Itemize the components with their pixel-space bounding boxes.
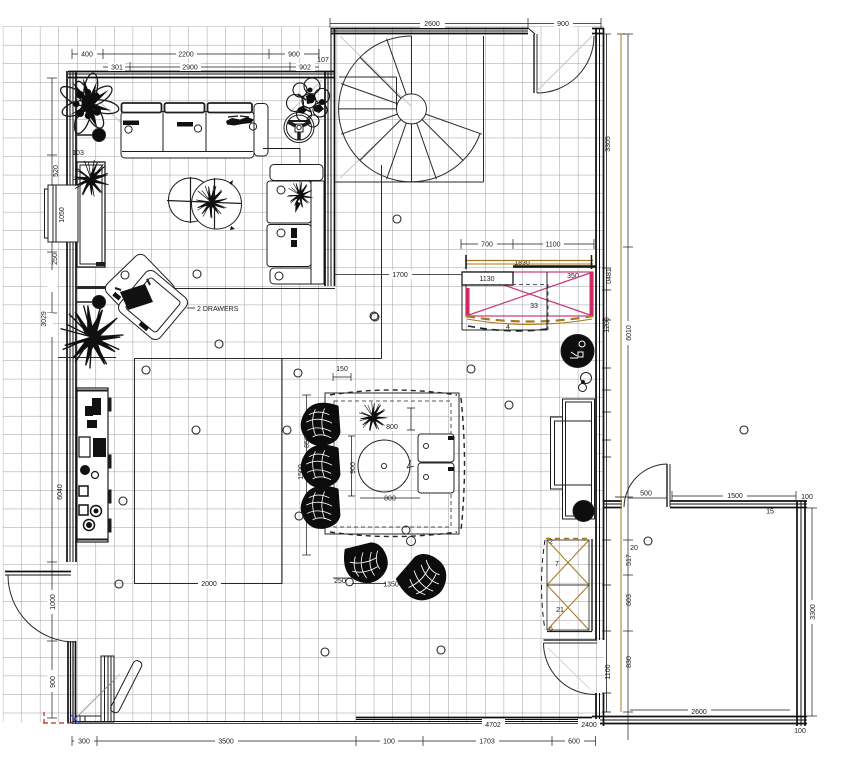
svg-text:2 DRAWERS: 2 DRAWERS [197, 306, 239, 313]
svg-text:900: 900 [557, 21, 569, 28]
svg-text:1700: 1700 [392, 272, 408, 279]
svg-text:1500: 1500 [727, 493, 743, 500]
svg-text:4702: 4702 [485, 722, 501, 729]
svg-text:250: 250 [52, 253, 59, 265]
svg-text:2200: 2200 [178, 52, 194, 59]
svg-text:3500: 3500 [218, 739, 234, 746]
svg-text:902: 902 [299, 65, 311, 72]
svg-text:103: 103 [72, 150, 84, 157]
svg-text:400: 400 [81, 52, 93, 59]
svg-text:301: 301 [111, 65, 123, 72]
svg-text:20: 20 [630, 545, 638, 552]
svg-text:700: 700 [481, 242, 493, 249]
svg-text:1200: 1200 [604, 317, 611, 333]
svg-text:33: 33 [530, 303, 538, 310]
svg-text:6010: 6010 [626, 325, 633, 341]
svg-text:150: 150 [336, 366, 348, 373]
svg-text:2900: 2900 [182, 65, 198, 72]
svg-text:900: 900 [350, 462, 357, 474]
svg-text:107: 107 [317, 57, 329, 64]
svg-text:600: 600 [568, 739, 580, 746]
svg-text:900: 900 [288, 52, 300, 59]
svg-text:2600: 2600 [424, 21, 440, 28]
svg-text:1350: 1350 [383, 582, 399, 589]
svg-text:3300: 3300 [810, 604, 817, 620]
svg-text:2000: 2000 [201, 581, 217, 588]
svg-text:3029: 3029 [41, 311, 48, 327]
svg-text:800: 800 [384, 496, 396, 503]
svg-text:520: 520 [53, 165, 60, 177]
svg-text:100: 100 [801, 494, 813, 501]
svg-text:900: 900 [50, 676, 57, 688]
svg-text:3305: 3305 [605, 136, 612, 152]
svg-text:830: 830 [626, 656, 633, 668]
svg-text:250: 250 [334, 578, 346, 585]
svg-text:2600: 2600 [691, 709, 707, 716]
svg-text:7: 7 [555, 561, 559, 568]
svg-text:300: 300 [78, 739, 90, 746]
svg-text:6040: 6040 [57, 484, 64, 500]
svg-text:1000: 1000 [50, 594, 57, 610]
svg-text:100: 100 [794, 728, 806, 735]
svg-text:100: 100 [383, 739, 395, 746]
svg-text:1050: 1050 [59, 207, 66, 223]
svg-text:1703: 1703 [479, 739, 495, 746]
svg-text:500: 500 [640, 491, 652, 498]
svg-text:800: 800 [386, 424, 398, 431]
svg-text:2400: 2400 [581, 722, 597, 729]
svg-text:517: 517 [626, 554, 633, 566]
svg-text:1100: 1100 [605, 664, 612, 679]
svg-text:0481: 0481 [606, 268, 613, 284]
svg-text:15: 15 [766, 509, 774, 516]
svg-text:1100: 1100 [545, 242, 560, 249]
svg-text:603: 603 [626, 594, 633, 606]
svg-text:1130: 1130 [479, 276, 494, 283]
